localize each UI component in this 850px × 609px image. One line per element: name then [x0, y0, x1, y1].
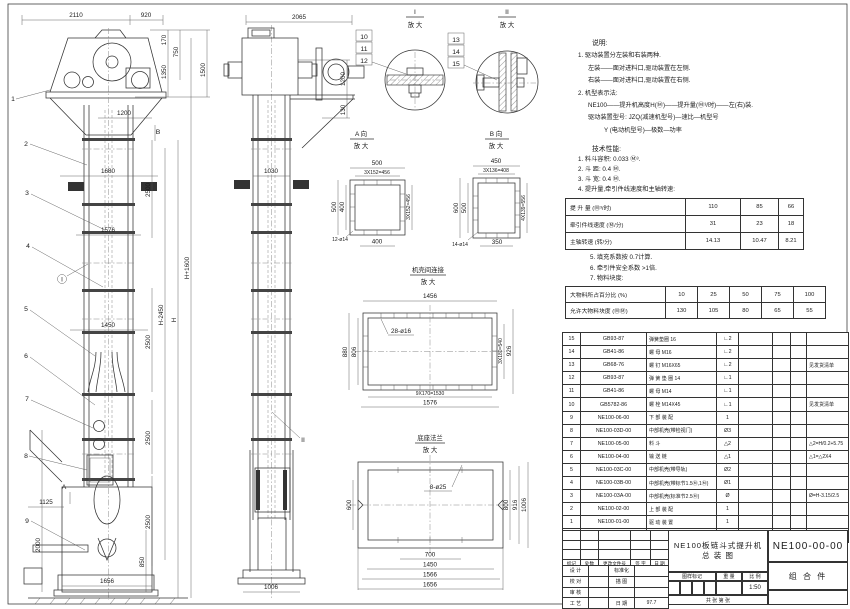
- dim-label: 400: [372, 239, 383, 246]
- capacity-table: 提 升 量 (Ⓜ³/时) 110 85 66 牵引件线速度 (Ⓜ/分) 31 2…: [565, 198, 804, 250]
- dim-label: 170: [161, 34, 168, 45]
- dim-label: 1200: [340, 72, 347, 87]
- dim-label: 4X139=556: [521, 195, 527, 221]
- bom-cell: 螺 栓 M14X45: [647, 398, 717, 411]
- bom-cell: [773, 398, 791, 411]
- bom-cell: [773, 503, 791, 516]
- value-cell: 80: [730, 303, 762, 319]
- revision-cell: [651, 540, 669, 550]
- bom-cell: [739, 516, 773, 529]
- part-callout-1: 1: [11, 96, 15, 103]
- dim-label: 2500: [145, 183, 152, 198]
- bom-cell: [807, 477, 849, 490]
- dim-label: 1680: [101, 168, 116, 175]
- bom-cell: NE100-03B-00: [581, 477, 647, 490]
- tech-item: 3. 斗 宽: 0.4 Ⓜ.: [578, 175, 675, 185]
- dim-label: 1500: [200, 63, 207, 78]
- revision-cell: [631, 531, 651, 541]
- bom-cell: [791, 450, 807, 463]
- bom-cell: ∟1: [717, 398, 739, 411]
- dim-label: 1656: [423, 582, 438, 589]
- dim-label: 350: [492, 239, 503, 246]
- bom-cell: [791, 424, 807, 437]
- part-callout-13: 13: [452, 37, 460, 44]
- tech-block-2: 5. 填充系数按 0.7计算. 6. 牵引件安全系数 >1倍. 7. 物料块度:: [590, 253, 657, 285]
- bom-cell: [791, 385, 807, 398]
- dim-label: 1576: [101, 227, 116, 234]
- bom-cell: [807, 333, 849, 346]
- bom-cell: 3: [563, 490, 581, 503]
- bom-cell: GB5782-86: [581, 398, 647, 411]
- bom-cell: 9: [563, 411, 581, 424]
- note-line: 1. 驱动装置分左装和右装两种.: [578, 50, 753, 62]
- note-line: 左装——面对进料口,驱动装置在左侧.: [578, 63, 753, 75]
- bom-cell: ∟2: [717, 333, 739, 346]
- note-line: 右装——面对进料口,驱动装置在右侧.: [578, 75, 753, 87]
- dim-label: 880: [342, 346, 349, 357]
- bom-cell: [773, 437, 791, 450]
- revision-cell: [563, 550, 581, 560]
- role-label: 审 核: [563, 587, 589, 598]
- bom-cell: 下 部 装 配: [647, 411, 717, 424]
- bom-cell: 4: [563, 477, 581, 490]
- dim-label: 450: [491, 158, 502, 165]
- bom-row: 15GB93-87弹簧垫圈 16∟2: [563, 333, 849, 346]
- bom-cell: [739, 346, 773, 359]
- bom-cell: 1: [717, 516, 739, 529]
- signature-cell: [635, 566, 669, 577]
- bom-cell: 见发货清单: [807, 359, 849, 372]
- value-cell: 65: [762, 303, 794, 319]
- bom-cell: 6: [563, 450, 581, 463]
- bom-cell: 15: [563, 333, 581, 346]
- bom-row: 14GB41-86螺 母 M16∟2: [563, 346, 849, 359]
- hole-callout: 14-ø14: [452, 242, 468, 248]
- bom-cell: 料 斗: [647, 437, 717, 450]
- table-row: 大物料所占百分比 (%) 10 25 50 75 100: [566, 287, 826, 303]
- bom-row: 13GB68-76螺 钉 M16X65∟2见发货清单: [563, 359, 849, 372]
- bom-row: 3NE100-03A-00中部机壳(标准节2.5Ⓜ)ØØ=H-3.15/2.5: [563, 490, 849, 503]
- note-line: 驱动装置型号: JZQ(减速机型号)—速比—机型号: [578, 112, 753, 124]
- tech-item: 2. 斗 距: 0.4 Ⓜ.: [578, 165, 675, 175]
- tech-item: 5. 填充系数按 0.7计算.: [590, 253, 657, 264]
- bom-cell: 7: [563, 437, 581, 450]
- empty-box: [768, 590, 848, 605]
- value-cell: 105: [698, 303, 730, 319]
- bom-cell: △1: [717, 450, 739, 463]
- bom-cell: GB41-86: [581, 385, 647, 398]
- bom-cell: 驱 动 装 置: [647, 516, 717, 529]
- bom-cell: [739, 450, 773, 463]
- dim-label: 9X170=1530: [416, 391, 445, 397]
- part-callout-11: 11: [360, 46, 367, 53]
- dim-label: 400: [339, 201, 346, 212]
- bom-cell: GB68-76: [581, 359, 647, 372]
- part-callout-5: 5: [24, 306, 28, 313]
- dim-label: 1006: [264, 584, 279, 591]
- weight-label: 重 量: [716, 572, 742, 581]
- dim-label: 700: [425, 552, 436, 559]
- value-cell: 10: [666, 287, 698, 303]
- bom-cell: 弹 簧 垫 圈 14: [647, 372, 717, 385]
- value-cell: 66: [779, 199, 804, 216]
- bom-cell: [739, 437, 773, 450]
- bom-cell: NE100-02-00: [581, 503, 647, 516]
- bom-row: 10GB5782-86螺 栓 M14X45∟1见发货清单: [563, 398, 849, 411]
- note-line: NE100——提升机高度H(Ⓜ)——提升量(Ⓜ³/时)——左(右)装.: [578, 100, 753, 112]
- view-title: B 向: [490, 129, 502, 138]
- bom-cell: [773, 424, 791, 437]
- bom-cell: 中部机壳(带标节1.5Ⓜ,1Ⓜ): [647, 477, 717, 490]
- detail-title: II: [505, 9, 509, 16]
- bom-row: 1NE100-01-00驱 动 装 置1: [563, 516, 849, 529]
- bom-cell: 12: [563, 372, 581, 385]
- row-label: 主轴转速 (转/分): [566, 233, 686, 250]
- bom-cell: [773, 359, 791, 372]
- bom-cell: [791, 359, 807, 372]
- part-callout-8: 8: [24, 453, 28, 460]
- dim-label: 1450: [423, 562, 438, 569]
- bom-row: 4NE100-03B-00中部机壳(带标节1.5Ⓜ,1Ⓜ)Ø1: [563, 477, 849, 490]
- role-label: 描 图: [609, 576, 635, 587]
- view-subtitle: 放 大: [421, 277, 436, 286]
- part-callout-15: 15: [452, 61, 460, 68]
- dim-label: 926: [506, 345, 513, 356]
- stamp-box: [668, 581, 680, 595]
- revision-cell: [599, 540, 631, 550]
- bom-cell: 弹簧垫圈 16: [647, 333, 717, 346]
- dim-label: 3X136=408: [483, 168, 509, 174]
- doc-type: 总 装 图: [702, 551, 734, 561]
- bom-cell: NE100-03D-00: [581, 424, 647, 437]
- detail-subtitle: 放 大: [408, 20, 423, 29]
- value-cell: 23: [741, 216, 779, 233]
- bom-cell: 10: [563, 398, 581, 411]
- weight-value: [716, 581, 742, 595]
- bom-cell: [739, 372, 773, 385]
- value-cell: 75: [762, 287, 794, 303]
- dim-label: 3X152=456: [364, 170, 390, 176]
- part-callout-12: 12: [360, 58, 368, 65]
- bom-cell: 上 部 装 配: [647, 503, 717, 516]
- scale-value: 1:50: [742, 581, 768, 595]
- bom-row: 9NE100-06-00下 部 装 配1: [563, 411, 849, 424]
- view-subtitle: 放 大: [489, 141, 504, 150]
- table-row: 允许大物料块度 (ⓂⓂ) 130 105 80 65 55: [566, 303, 826, 319]
- bom-cell: [773, 333, 791, 346]
- bom-cell: [739, 411, 773, 424]
- dim-label: 1566: [423, 572, 438, 579]
- bom-cell: [807, 424, 849, 437]
- drawing-number: NE100-00-00: [768, 530, 848, 562]
- signature-row: 设 计标准化: [563, 566, 669, 577]
- bom-cell: [791, 503, 807, 516]
- bom-cell: Ø3: [717, 424, 739, 437]
- bom-cell: [739, 398, 773, 411]
- bom-cell: [791, 398, 807, 411]
- value-cell: 8.21: [779, 233, 804, 250]
- side-elevation-view: 2065 1200 130 1030 1006 II: [224, 14, 364, 592]
- bom-cell: △2: [717, 437, 739, 450]
- dim-label: 130: [340, 104, 347, 115]
- part-callout-6: 6: [24, 353, 28, 360]
- bom-row: 2NE100-02-00上 部 装 配1: [563, 503, 849, 516]
- view-a: A 向 放 大 500 3X152=456 500 400 3X152=456 …: [331, 129, 412, 246]
- bom-cell: [773, 490, 791, 503]
- signature-row: 工 艺日 期97.7: [563, 598, 669, 609]
- bom-cell: [807, 463, 849, 476]
- bom-cell: Ø1: [717, 477, 739, 490]
- bom-row: 11GB41-86螺 母 M14∟1: [563, 385, 849, 398]
- stamp-box: [692, 581, 704, 595]
- detail-view-2: II 放 大 13 14 15: [448, 9, 538, 113]
- bom-cell: [773, 372, 791, 385]
- revision-cell: [651, 531, 669, 541]
- bom-cell: [773, 477, 791, 490]
- bom-cell: GB93-87: [581, 372, 647, 385]
- bom-row: 7NE100-05-00料 斗△2△2=H/0.2+5.75: [563, 437, 849, 450]
- tech-item: 4. 提升量,牵引件线速度和主轴转速:: [578, 185, 675, 195]
- dim-label: 600: [453, 202, 460, 213]
- view-title: A 向: [355, 129, 367, 138]
- value-cell: 10.47: [741, 233, 779, 250]
- drawing-sheet: 2110 920 170 750 1350 1500 1200 1680 250…: [0, 0, 850, 609]
- revision-cell: [563, 540, 581, 550]
- revision-cell: [631, 550, 651, 560]
- bom-cell: [791, 372, 807, 385]
- revision-cell: [651, 550, 669, 560]
- tech-item: 7. 物料块度:: [590, 274, 657, 285]
- dim-label: 600: [346, 499, 353, 510]
- revision-cell: [599, 531, 631, 541]
- bom-cell: NE100-01-00: [581, 516, 647, 529]
- revision-cell: [581, 540, 599, 550]
- note-line: Y (电动机型号)—极数—功率: [578, 125, 753, 137]
- bom-cell: △1=△2X4: [807, 450, 849, 463]
- bom-cell: 2: [563, 503, 581, 516]
- value-cell: 55: [794, 303, 826, 319]
- bom-cell: 8: [563, 424, 581, 437]
- view-b: B 向 放 大 450 3X136=408 600 500 4X139=556 …: [452, 129, 527, 248]
- bom-cell: [807, 516, 849, 529]
- section-marker-a: A: [62, 484, 67, 491]
- dim-label: 750: [173, 46, 180, 57]
- dim-label: 1030: [264, 168, 279, 175]
- revision-cell: [563, 531, 581, 541]
- bom-cell: NE100-05-00: [581, 437, 647, 450]
- bom-row: 5NE100-03C-00中部机壳(带导轨)Ø2: [563, 463, 849, 476]
- dim-label: H+1600: [184, 256, 191, 279]
- dim-label: 2500: [145, 335, 152, 350]
- value-cell: 14.13: [686, 233, 741, 250]
- bom-cell: NE100-03A-00: [581, 490, 647, 503]
- product-name: NE100板链斗式提升机: [674, 541, 762, 551]
- revision-table: 标记 处数 更改文件号 签 字 日 期: [562, 530, 669, 569]
- part-callout-14: 14: [452, 49, 460, 56]
- bom-cell: [807, 411, 849, 424]
- value-cell: 50: [730, 287, 762, 303]
- part-callout-9: 9: [25, 518, 29, 525]
- parts-list-table: 15GB93-87弹簧垫圈 16∟2 14GB41-86螺 母 M16∟2 13…: [562, 332, 849, 543]
- bom-cell: Ø2: [717, 463, 739, 476]
- revision-cell: [581, 531, 599, 541]
- part-callout-4: 4: [26, 243, 30, 250]
- view-subtitle: 放 大: [423, 445, 438, 454]
- dim-label: 920: [141, 12, 152, 19]
- dim-label: 1200: [117, 110, 132, 117]
- bom-cell: 输 送 链: [647, 450, 717, 463]
- dim-label: 3X152=456: [406, 194, 412, 220]
- hole-callout: 28-ø16: [391, 328, 411, 335]
- bom-cell: NE100-03C-00: [581, 463, 647, 476]
- bom-cell: [773, 346, 791, 359]
- bom-cell: 中部机壳(带导轨): [647, 463, 717, 476]
- dim-label: 1350: [161, 65, 168, 80]
- dim-label: 500: [331, 201, 338, 212]
- bom-cell: [739, 490, 773, 503]
- bom-cell: 14: [563, 346, 581, 359]
- dim-label: 500: [372, 160, 383, 167]
- bom-cell: [791, 490, 807, 503]
- part-callout-7: 7: [25, 396, 29, 403]
- row-label: 牵引件线速度 (Ⓜ/分): [566, 216, 686, 233]
- signature-cell: [589, 598, 609, 609]
- hole-callout: 12-ø14: [332, 237, 348, 243]
- stamp-box: [680, 581, 692, 595]
- dim-label: 2065: [292, 14, 307, 21]
- date-cell: 97.7: [635, 598, 669, 609]
- bom-cell: [791, 516, 807, 529]
- role-label: 设 计: [563, 566, 589, 577]
- bom-cell: [791, 346, 807, 359]
- detail-view-1: I 放 大 10 11 12: [356, 9, 445, 110]
- row-label: 提 升 量 (Ⓜ³/时): [566, 199, 686, 216]
- tech-item: 1. 料斗容积: 0.033 Ⓜ³.: [578, 155, 675, 165]
- bom-cell: [739, 424, 773, 437]
- dim-label: 1656: [100, 578, 115, 585]
- signature-cell: [589, 576, 609, 587]
- value-cell: 31: [686, 216, 741, 233]
- tech-block: 技术性能: 1. 料斗容积: 0.033 Ⓜ³. 2. 斗 距: 0.4 Ⓜ. …: [578, 145, 675, 195]
- dim-label: H-2450: [158, 304, 165, 325]
- tech-heading: 技术性能:: [578, 145, 675, 155]
- part-class: 组 合 件: [768, 562, 848, 590]
- part-callout-10: 10: [360, 34, 368, 41]
- casing-flange-view: 机壳间连接 放 大 1456 880 806 3X180=540 926 9X1…: [342, 265, 513, 407]
- bom-cell: 中部机壳(带检视门): [647, 424, 717, 437]
- value-cell: 130: [666, 303, 698, 319]
- bom-row: 8NE100-03D-00中部机壳(带检视门)Ø3: [563, 424, 849, 437]
- row-label: 允许大物料块度 (ⓂⓂ): [566, 303, 666, 319]
- dim-label: 1450: [101, 322, 116, 329]
- value-cell: 25: [698, 287, 730, 303]
- signature-cell: [589, 566, 609, 577]
- bom-cell: [773, 516, 791, 529]
- signature-row: 校 对描 图: [563, 576, 669, 587]
- bom-cell: [739, 385, 773, 398]
- tech-item: 6. 牵引件安全系数 >1倍.: [590, 264, 657, 275]
- bom-cell: [791, 477, 807, 490]
- dim-label: 1006: [521, 498, 528, 513]
- bom-cell: [773, 463, 791, 476]
- bom-cell: Ø: [717, 490, 739, 503]
- revision-cell: [581, 550, 599, 560]
- value-cell: 110: [686, 199, 741, 216]
- role-label: 工 艺: [563, 598, 589, 609]
- bom-cell: 螺 母 M16: [647, 346, 717, 359]
- bom-cell: [739, 333, 773, 346]
- bom-cell: 螺 钉 M16X65: [647, 359, 717, 372]
- dim-label: 806: [351, 346, 358, 357]
- dim-label: H: [171, 317, 178, 322]
- role-label: 日 期: [609, 598, 635, 609]
- bom-cell: 中部机壳(标准节2.5Ⓜ): [647, 490, 717, 503]
- bom-cell: GB93-87: [581, 333, 647, 346]
- section-marker-b: B: [156, 129, 161, 136]
- bom-cell: 11: [563, 385, 581, 398]
- dim-label: 2110: [69, 12, 83, 19]
- table-row: 主轴转速 (转/分) 14.13 10.47 8.21: [566, 233, 804, 250]
- role-label: [609, 587, 635, 598]
- bom-cell: 5: [563, 463, 581, 476]
- dim-label: 1125: [39, 499, 53, 506]
- detail-title: I: [414, 9, 416, 16]
- scale-label: 比 例: [742, 572, 768, 581]
- bom-cell: [807, 503, 849, 516]
- bom-cell: [791, 333, 807, 346]
- bom-cell: GB41-86: [581, 346, 647, 359]
- role-label: 标准化: [609, 566, 635, 577]
- table-row: 牵引件线速度 (Ⓜ/分) 31 23 18: [566, 216, 804, 233]
- view-subtitle: 放 大: [354, 141, 369, 150]
- bom-cell: 见发货清单: [807, 398, 849, 411]
- stamp-box: [704, 581, 716, 595]
- revision-row: [563, 550, 669, 560]
- stamp-label: 图样标记: [668, 572, 716, 581]
- dim-label: 1456: [423, 293, 438, 300]
- base-flange-view: 底座法兰 放 大 8-ø25 600 800 916 1006 700 1450…: [346, 433, 528, 590]
- dim-label: 2000: [35, 538, 42, 553]
- signature-cell: [589, 587, 609, 598]
- drawing-title: NE100板链斗式提升机 总 装 图: [668, 530, 768, 572]
- bom-cell: [807, 372, 849, 385]
- dim-label: 2500: [145, 431, 152, 446]
- view-title: 底座法兰: [417, 433, 443, 442]
- bom-cell: [791, 437, 807, 450]
- revision-row: [563, 540, 669, 550]
- notes-heading: 说明:: [578, 38, 753, 50]
- bom-cell: 1: [563, 516, 581, 529]
- bom-cell: [791, 463, 807, 476]
- bom-cell: [773, 450, 791, 463]
- part-callout-2: 2: [24, 141, 28, 148]
- value-cell: 18: [779, 216, 804, 233]
- table-row: 提 升 量 (Ⓜ³/时) 110 85 66: [566, 199, 804, 216]
- dim-label: 2500: [145, 515, 152, 530]
- dim-label: 850: [139, 556, 146, 567]
- lump-size-table: 大物料所占百分比 (%) 10 25 50 75 100 允许大物料块度 (ⓂⓂ…: [565, 286, 826, 319]
- bom-cell: [807, 385, 849, 398]
- bom-cell: 1: [717, 503, 739, 516]
- note-line: 2. 机型表示法:: [578, 88, 753, 100]
- revision-cell: [599, 550, 631, 560]
- bom-cell: 1: [717, 411, 739, 424]
- bom-cell: [739, 477, 773, 490]
- bom-row: 12GB93-87弹 簧 垫 圈 14∟1: [563, 372, 849, 385]
- bom-cell: 螺 母 M14: [647, 385, 717, 398]
- bom-cell: [739, 359, 773, 372]
- bom-cell: [773, 385, 791, 398]
